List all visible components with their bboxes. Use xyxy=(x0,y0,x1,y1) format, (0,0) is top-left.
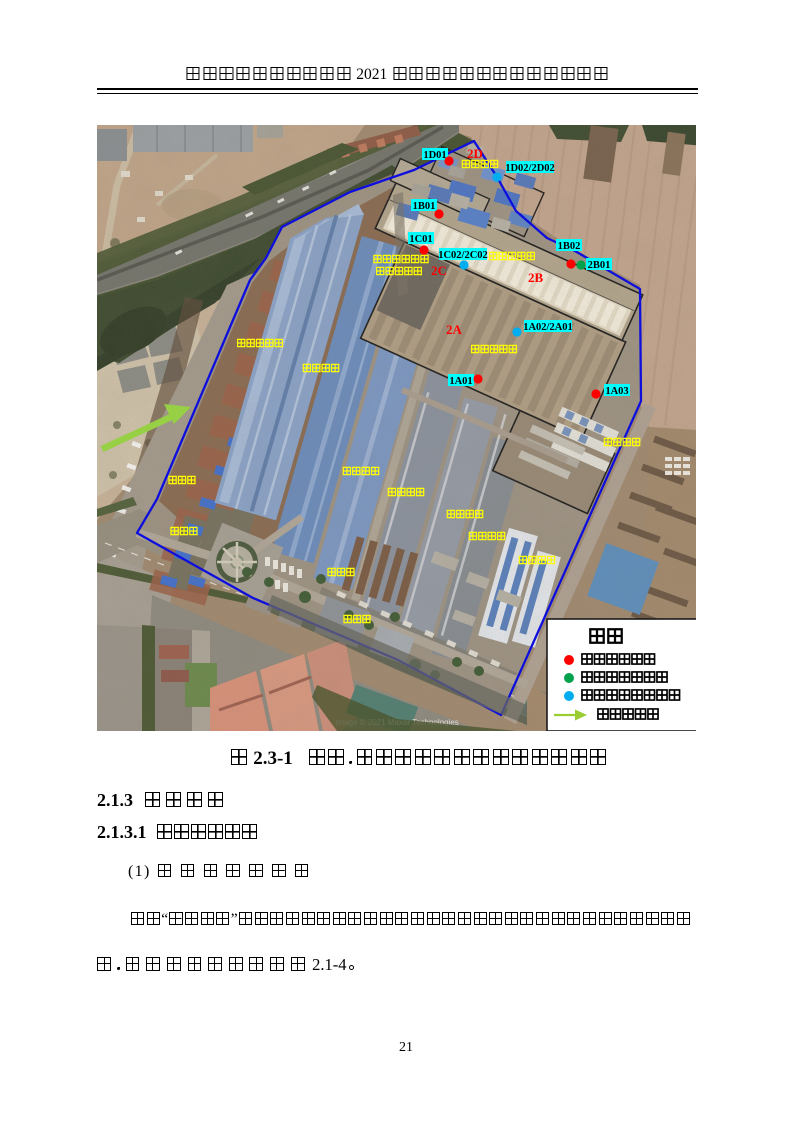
svg-text:2B: 2B xyxy=(528,270,544,285)
svg-text:2C: 2C xyxy=(431,263,447,278)
svg-text:1D01: 1D01 xyxy=(423,150,446,161)
svg-text:1D02/2D02: 1D02/2D02 xyxy=(505,163,555,174)
svg-text:1A02/2A01: 1A02/2A01 xyxy=(523,322,573,333)
svg-text:1A03: 1A03 xyxy=(605,386,628,397)
svg-text:2B01: 2B01 xyxy=(588,260,611,271)
svg-text:1B02: 1B02 xyxy=(558,241,581,252)
svg-text:2A: 2A xyxy=(446,322,463,337)
svg-text:1C02/2C02: 1C02/2C02 xyxy=(438,250,488,261)
svg-text:1C01: 1C01 xyxy=(409,234,432,245)
svg-text:1A01: 1A01 xyxy=(449,376,472,387)
svg-text:2D: 2D xyxy=(467,146,483,161)
svg-text:1B01: 1B01 xyxy=(413,201,436,212)
